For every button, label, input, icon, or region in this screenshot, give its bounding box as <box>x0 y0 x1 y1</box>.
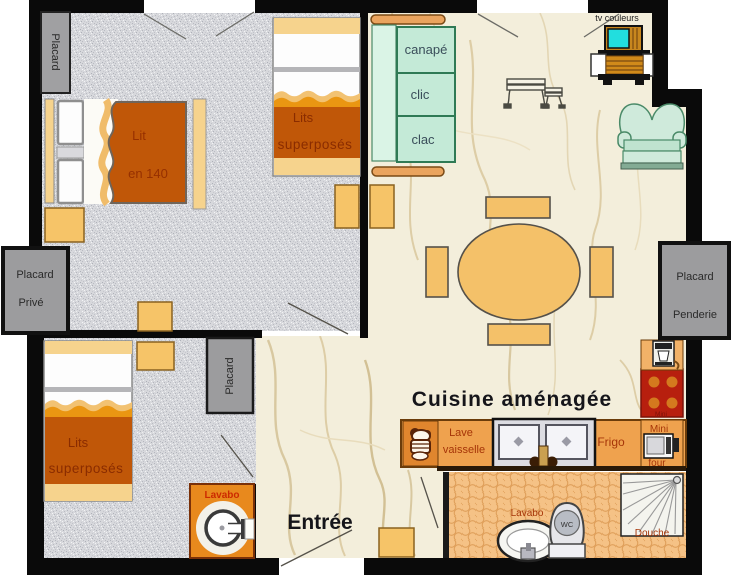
svg-text:Placard: Placard <box>49 33 61 70</box>
svg-text:vaisselle: vaisselle <box>443 444 485 456</box>
svg-text:Douche: Douche <box>635 528 670 539</box>
svg-text:Lave: Lave <box>449 427 473 439</box>
svg-text:Frigo: Frigo <box>597 435 625 449</box>
svg-text:tv couleurs: tv couleurs <box>595 13 639 23</box>
svg-text:Mini: Mini <box>655 411 667 418</box>
svg-text:clic: clic <box>411 87 430 102</box>
svg-text:Entrée: Entrée <box>287 511 352 534</box>
svg-text:Cuisine aménagée: Cuisine aménagée <box>412 388 612 411</box>
svg-text:clac: clac <box>411 132 435 147</box>
svg-text:Privé: Privé <box>18 297 43 309</box>
svg-text:superposés: superposés <box>278 137 353 152</box>
svg-text:Penderie: Penderie <box>673 309 717 321</box>
svg-text:Lits: Lits <box>293 110 314 125</box>
svg-text:Placard: Placard <box>224 357 236 394</box>
svg-text:en 140: en 140 <box>128 166 168 181</box>
svg-text:Lit: Lit <box>132 128 146 143</box>
svg-text:Placard: Placard <box>16 269 53 281</box>
svg-text:WC: WC <box>561 520 574 529</box>
svg-text:Lavabo: Lavabo <box>204 490 239 501</box>
svg-text:Lavabo: Lavabo <box>511 508 544 519</box>
svg-text:superposés: superposés <box>49 461 124 476</box>
svg-text:Placard: Placard <box>676 271 713 283</box>
svg-text:Lits: Lits <box>68 435 89 450</box>
svg-text:canapé: canapé <box>405 42 448 57</box>
